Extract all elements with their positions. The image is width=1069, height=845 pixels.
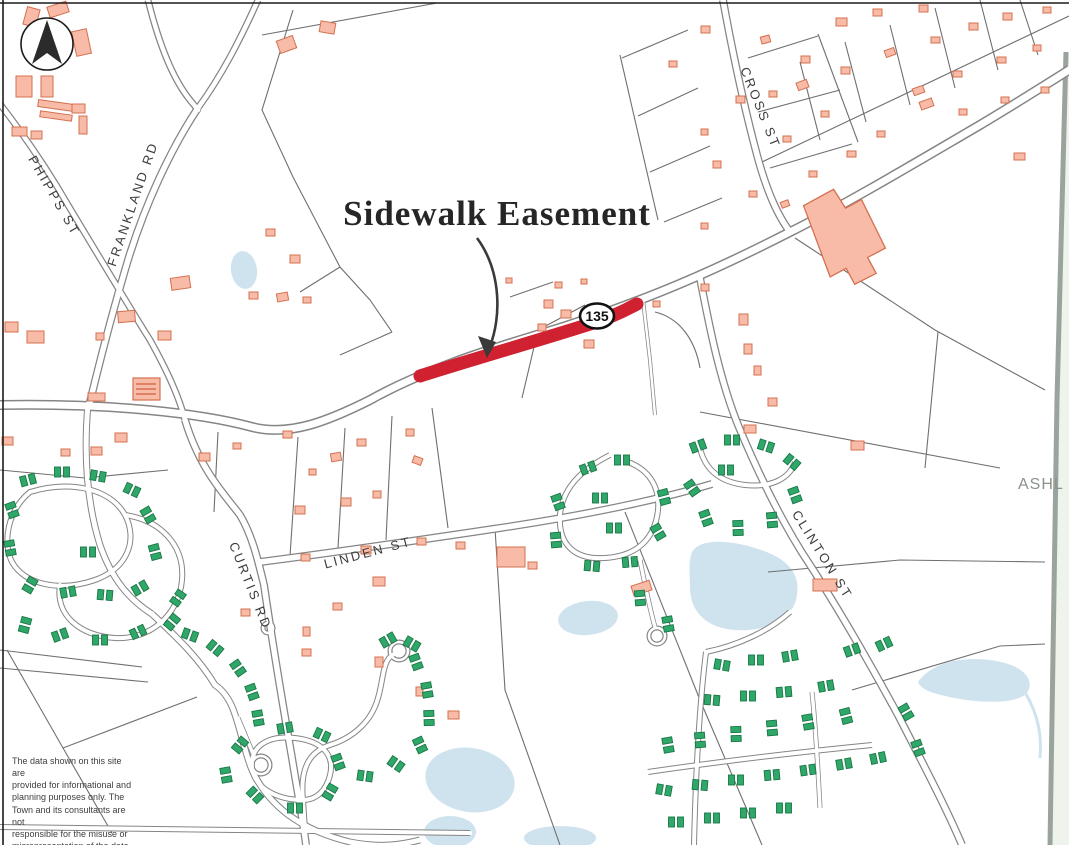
duplex-unit (786, 803, 792, 813)
duplex-building (788, 486, 803, 504)
building (1043, 7, 1051, 13)
building (912, 85, 925, 95)
building (919, 5, 928, 12)
disclaimer-line: responsible for the misuse or (12, 828, 134, 840)
duplex-unit (663, 746, 674, 754)
disclaimer-line: Town and its consultants are not (12, 804, 134, 828)
duplex-unit (788, 486, 799, 495)
duplex-building (424, 710, 435, 725)
duplex-unit (409, 653, 420, 662)
building (375, 657, 383, 667)
building (584, 340, 594, 348)
duplex-unit (749, 655, 755, 665)
duplex-unit (253, 719, 264, 727)
road-casing (148, 0, 198, 110)
duplex-unit (90, 547, 96, 557)
duplex-unit (662, 616, 673, 624)
parcel-line (340, 332, 392, 355)
duplex-building (129, 624, 147, 639)
duplex-building (357, 770, 373, 782)
duplex-unit (870, 753, 878, 764)
duplex-unit (277, 723, 285, 734)
building (295, 506, 305, 514)
duplex-unit (654, 531, 666, 541)
duplex-unit (663, 625, 674, 633)
duplex-unit (190, 631, 199, 642)
duplex-unit (230, 659, 242, 670)
parcel-line (214, 432, 218, 512)
building (953, 71, 962, 77)
duplex-unit (701, 780, 708, 790)
duplex-unit (248, 692, 259, 701)
building (544, 300, 553, 308)
duplex-unit (252, 710, 263, 718)
map-page: FRANKLAND RD PHIPPS ST CROSS ST CURTIS R… (0, 0, 1069, 845)
duplex-building (206, 639, 224, 656)
duplex-unit (692, 779, 699, 789)
duplex-unit (8, 510, 19, 519)
duplex-unit (151, 552, 162, 560)
duplex-building (656, 784, 673, 796)
parcel-line (290, 437, 298, 556)
building (497, 547, 525, 567)
building (713, 161, 721, 168)
building (841, 67, 850, 74)
building (701, 223, 708, 229)
building (412, 456, 423, 466)
building (330, 452, 341, 462)
duplex-building (689, 439, 707, 454)
duplex-unit (60, 628, 69, 639)
duplex-unit (803, 723, 814, 731)
building (233, 443, 241, 449)
building (158, 331, 171, 340)
parcel-line (0, 650, 142, 667)
duplex-building (875, 636, 893, 651)
building (373, 577, 385, 586)
duplex-unit (776, 687, 783, 697)
parcel-line (338, 428, 345, 548)
parcel-line (638, 88, 698, 116)
duplex-unit (809, 764, 816, 775)
parcel-line (432, 408, 448, 528)
building (276, 35, 296, 53)
duplex-unit (235, 666, 247, 677)
duplex-unit (734, 435, 740, 445)
duplex-building (870, 752, 887, 765)
duplex-building (593, 493, 608, 503)
duplex-building (81, 547, 96, 557)
duplex-unit (424, 719, 434, 725)
parcel-line (980, 0, 998, 70)
duplex-unit (64, 467, 70, 477)
building (72, 29, 92, 57)
duplex-building (288, 803, 303, 813)
duplex-building (131, 580, 149, 596)
building (170, 276, 190, 291)
building (744, 425, 756, 433)
duplex-unit (403, 636, 413, 648)
duplex-unit (902, 711, 914, 721)
pond (420, 741, 520, 820)
building (333, 603, 342, 610)
duplex-building (818, 680, 835, 692)
duplex-building (412, 736, 427, 754)
duplex-unit (750, 808, 756, 818)
duplex-unit (767, 729, 777, 736)
building (581, 279, 587, 284)
duplex-unit (421, 682, 432, 690)
stream (1026, 694, 1040, 758)
duplex-unit (741, 691, 747, 701)
duplex-building (97, 589, 113, 600)
duplex-unit (665, 785, 673, 796)
road-surface (260, 484, 712, 562)
building (561, 310, 571, 318)
road-casing (0, 70, 1069, 430)
duplex-unit (757, 439, 766, 450)
duplex-unit (81, 547, 87, 557)
duplex-building (19, 473, 36, 487)
duplex-unit (699, 509, 710, 518)
building (241, 609, 250, 616)
duplex-unit (220, 767, 231, 775)
duplex-building (836, 758, 853, 770)
duplex-building (148, 543, 162, 560)
duplex-unit (705, 813, 711, 823)
duplex-unit (714, 659, 722, 670)
duplex-building (719, 465, 734, 475)
building (997, 57, 1006, 63)
duplex-unit (650, 523, 662, 533)
duplex-building (123, 482, 141, 497)
building (115, 433, 127, 442)
pond (556, 598, 619, 638)
building (373, 491, 381, 498)
parcel-line (800, 62, 820, 140)
building (653, 301, 660, 307)
road-casing (185, 420, 306, 845)
parcel-line (925, 332, 938, 468)
duplex-unit (106, 590, 113, 600)
road-surface (7, 487, 130, 586)
duplex-unit (60, 587, 68, 598)
duplex-unit (766, 442, 775, 453)
building (736, 96, 745, 103)
duplex-unit (875, 640, 885, 652)
duplex-building (669, 817, 684, 827)
building (760, 35, 771, 44)
duplex-unit (334, 762, 345, 771)
duplex-unit (331, 753, 342, 762)
disclaimer-line: The data shown on this site are (12, 755, 134, 779)
duplex-unit (139, 580, 149, 592)
building (41, 76, 53, 97)
parcel-line (770, 144, 852, 168)
parcel-line (890, 25, 910, 105)
duplex-unit (148, 543, 159, 551)
shield-number: 135 (585, 308, 609, 324)
duplex-building (252, 710, 264, 727)
duplex-building (741, 691, 756, 701)
parcel-line (622, 30, 688, 58)
striped-building (133, 378, 160, 400)
building (1001, 97, 1009, 103)
building (448, 711, 459, 719)
duplex-unit (624, 455, 630, 465)
building (38, 100, 75, 112)
duplex-unit (93, 635, 99, 645)
duplex-building (622, 556, 638, 567)
building (821, 111, 829, 117)
duplex-unit (97, 589, 104, 599)
duplex-building (733, 520, 744, 535)
duplex-unit (55, 467, 61, 477)
parcel-line (0, 668, 148, 682)
duplex-unit (5, 549, 16, 557)
building (88, 393, 105, 401)
building (301, 554, 310, 561)
duplex-unit (800, 765, 807, 776)
building (1014, 153, 1025, 160)
building (836, 18, 847, 26)
duplex-unit (766, 512, 776, 519)
duplex-unit (387, 632, 397, 644)
duplex-unit (728, 465, 734, 475)
duplex-unit (321, 731, 331, 743)
duplex-unit (550, 532, 560, 539)
duplex-unit (723, 660, 731, 671)
building (1003, 13, 1012, 20)
building (669, 61, 677, 67)
duplex-building (230, 659, 247, 677)
duplex-building (662, 616, 674, 633)
duplex-unit (322, 791, 334, 801)
adjacent-town-label: ASHL (1018, 476, 1064, 493)
duplex-unit (662, 737, 673, 745)
duplex-building (764, 769, 780, 780)
building (309, 469, 316, 475)
duplex-unit (394, 761, 405, 773)
duplex-unit (758, 655, 764, 665)
duplex-building (714, 659, 731, 671)
duplex-unit (842, 716, 853, 724)
duplex-unit (181, 628, 190, 639)
duplex-unit (616, 523, 622, 533)
building (16, 76, 32, 97)
duplex-unit (631, 556, 638, 566)
duplex-unit (818, 681, 826, 692)
duplex-building (387, 756, 405, 773)
duplex-unit (357, 770, 364, 781)
pond (228, 249, 259, 290)
duplex-unit (764, 770, 771, 780)
route-135-shield: 135 (580, 304, 614, 329)
duplex-unit (593, 493, 599, 503)
duplex-building (607, 523, 622, 533)
duplex-unit (22, 584, 34, 594)
duplex-building (766, 512, 777, 528)
duplex-unit (313, 727, 323, 739)
duplex-unit (551, 541, 561, 548)
duplex-unit (584, 560, 591, 570)
building (959, 109, 967, 115)
duplex-unit (90, 470, 98, 481)
building (249, 292, 258, 299)
duplex-unit (767, 521, 777, 528)
duplex-unit (131, 486, 141, 498)
disclaimer-line: provided for informational and (12, 779, 134, 791)
building (780, 200, 790, 208)
duplex-building (843, 643, 861, 658)
building (919, 98, 934, 110)
duplex-unit (634, 590, 644, 597)
building (303, 297, 311, 303)
duplex-building (90, 470, 107, 482)
duplex-unit (802, 714, 813, 722)
disclaimer-line: planning purposes only. The (12, 791, 134, 803)
duplex-building (731, 726, 742, 741)
parcel-line (655, 312, 700, 368)
duplex-unit (412, 662, 423, 671)
road-surface (59, 515, 182, 638)
duplex-building (776, 686, 792, 697)
road-surface (643, 300, 655, 415)
building (884, 48, 896, 58)
duplex-unit (878, 752, 886, 763)
duplex-unit (782, 651, 790, 662)
duplex-unit (286, 722, 294, 733)
duplex-unit (123, 482, 133, 494)
parcel-line (7, 650, 197, 748)
duplex-building (51, 628, 69, 643)
building (417, 538, 426, 545)
duplex-unit (69, 586, 77, 597)
duplex-building (18, 616, 32, 633)
duplex-unit (635, 599, 645, 606)
duplex-building (749, 655, 764, 665)
building (303, 627, 310, 636)
building (456, 542, 465, 549)
parcel-line (845, 42, 866, 122)
duplex-unit (387, 756, 398, 768)
building (266, 229, 275, 236)
building (27, 331, 44, 343)
duplex-unit (288, 803, 294, 813)
building (528, 562, 537, 569)
building (701, 129, 708, 135)
building (701, 284, 709, 291)
duplex-unit (221, 776, 232, 784)
duplex-building (550, 532, 561, 548)
duplex-unit (615, 455, 621, 465)
duplex-building (705, 813, 720, 823)
disclaimer-line: misrepresentation of the data. (12, 840, 134, 845)
duplex-unit (669, 817, 675, 827)
duplex-unit (719, 465, 725, 475)
duplex-unit (622, 557, 629, 567)
duplex-unit (297, 803, 303, 813)
parcel-line (664, 198, 722, 222)
building (809, 171, 817, 177)
duplex-unit (694, 732, 704, 739)
parcel-line (510, 282, 553, 297)
building (873, 9, 882, 16)
building (801, 56, 810, 63)
building (72, 104, 85, 113)
duplex-unit (21, 616, 32, 624)
duplex-building (692, 779, 708, 790)
duplex-unit (714, 813, 720, 823)
road-surface (0, 70, 1069, 430)
duplex-unit (140, 506, 152, 516)
duplex-unit (704, 694, 711, 704)
duplex-unit (839, 707, 850, 715)
duplex-building (634, 590, 645, 606)
duplex-unit (733, 529, 743, 535)
duplex-building (245, 683, 260, 701)
building (754, 366, 761, 375)
building (199, 453, 210, 461)
duplex-building (584, 560, 600, 571)
building (769, 91, 777, 97)
duplex-unit (99, 471, 107, 482)
duplex-unit (18, 625, 29, 633)
building (969, 23, 978, 30)
building (96, 333, 104, 340)
duplex-building (699, 509, 714, 527)
parcel-line (262, 10, 392, 332)
building (79, 116, 87, 134)
duplex-building (409, 653, 424, 671)
duplex-unit (702, 518, 713, 527)
disclaimer: The data shown on this site are provided… (12, 755, 134, 845)
duplex-unit (366, 771, 373, 782)
duplex-unit (731, 735, 741, 741)
duplex-unit (731, 726, 741, 732)
duplex-unit (750, 691, 756, 701)
building (357, 439, 366, 446)
pond (524, 826, 596, 845)
duplex-unit (206, 639, 217, 651)
duplex-unit (424, 710, 434, 716)
town-parcel-map: FRANKLAND RD PHIPPS ST CROSS ST CURTIS R… (0, 0, 1069, 845)
building (783, 136, 791, 142)
street-label-phipps: PHIPPS ST (25, 153, 83, 239)
duplex-unit (843, 646, 852, 657)
duplex-building (800, 764, 816, 776)
duplex-unit (785, 686, 792, 696)
building (749, 191, 757, 197)
duplex-building (839, 707, 853, 724)
duplex-unit (845, 758, 853, 769)
duplex-building (220, 767, 232, 784)
building (931, 37, 940, 43)
duplex-unit (791, 650, 799, 661)
duplex-unit (725, 435, 731, 445)
duplex-unit (656, 784, 664, 795)
duplex-unit (28, 473, 36, 484)
building (5, 322, 18, 332)
building (538, 324, 546, 331)
duplex-unit (773, 769, 780, 779)
duplex-building (662, 737, 674, 754)
duplex-building (615, 455, 630, 465)
building (555, 282, 562, 288)
duplex-unit (245, 683, 256, 692)
duplex-unit (213, 645, 224, 657)
duplex-unit (326, 783, 338, 793)
